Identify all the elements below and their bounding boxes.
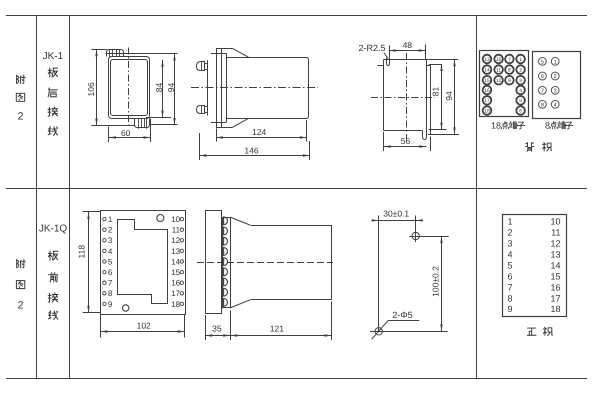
svg-text:7: 7 [541,88,544,94]
svg-text:94: 94 [166,83,176,93]
svg-text:118: 118 [77,245,87,259]
svg-text:13: 13 [484,57,490,63]
svg-text:4: 4 [508,249,513,259]
svg-text:9: 9 [108,300,113,309]
svg-text:5: 5 [519,98,522,104]
svg-text:3: 3 [508,239,513,249]
svg-text:2: 2 [554,74,557,80]
svg-text:84: 84 [154,83,164,93]
svg-text:7: 7 [508,57,511,63]
svg-text:4: 4 [554,102,557,108]
svg-text:5: 5 [508,260,513,270]
svg-text:2: 2 [508,228,513,238]
svg-text:4: 4 [519,88,522,94]
svg-text:17: 17 [484,98,490,104]
svg-text:146: 146 [244,145,258,155]
svg-text:13: 13 [550,249,560,259]
svg-text:17: 17 [171,289,180,298]
svg-text:2-Φ5: 2-Φ5 [392,310,412,320]
svg-text:11: 11 [172,226,181,235]
svg-text:48: 48 [403,40,413,50]
svg-text:JK-1Q: JK-1Q [39,223,68,234]
svg-text:6: 6 [541,74,544,80]
svg-text:2-R2.5: 2-R2.5 [358,43,385,53]
svg-text:6: 6 [508,271,513,281]
svg-text:1: 1 [519,57,522,63]
svg-text:12: 12 [550,239,560,249]
svg-text:2: 2 [108,226,113,235]
svg-text:14: 14 [550,260,560,270]
svg-text:5: 5 [108,257,113,266]
svg-text:3: 3 [519,78,522,84]
svg-text:1: 1 [554,59,557,65]
svg-text:18: 18 [484,108,490,114]
svg-text:13: 13 [171,247,180,256]
svg-text:94: 94 [444,91,454,101]
svg-text:8: 8 [541,102,544,108]
svg-text:10: 10 [496,57,502,63]
svg-text:11: 11 [551,228,560,238]
svg-text:121: 121 [270,324,284,334]
svg-text:60: 60 [121,128,131,138]
svg-text:7: 7 [108,279,113,288]
svg-text:14: 14 [484,67,490,73]
svg-text:5: 5 [541,59,544,65]
svg-text:15: 15 [550,271,560,281]
svg-text:124: 124 [252,127,266,137]
svg-text:30±0.1: 30±0.1 [383,209,409,219]
svg-text:8: 8 [508,293,513,303]
svg-text:9: 9 [508,78,511,84]
svg-text:6: 6 [108,268,113,277]
svg-text:18: 18 [491,120,501,130]
svg-text:12: 12 [496,78,502,84]
svg-text:17: 17 [550,293,560,303]
svg-text:18: 18 [171,300,180,309]
svg-text:8: 8 [508,67,511,73]
svg-text:16: 16 [550,282,560,292]
svg-text:10: 10 [550,217,560,227]
svg-text:7: 7 [508,282,513,292]
svg-text:106: 106 [86,82,96,96]
svg-text:15: 15 [484,78,490,84]
svg-text:56: 56 [401,136,411,146]
svg-text:11: 11 [496,67,501,73]
svg-text:102: 102 [137,321,151,331]
svg-text:4: 4 [108,247,113,256]
svg-text:JK-1: JK-1 [43,51,64,62]
svg-text:81: 81 [430,87,440,97]
svg-text:35: 35 [212,324,222,334]
svg-text:16: 16 [171,279,180,288]
svg-text:12: 12 [171,236,180,245]
svg-text:8: 8 [545,120,550,130]
svg-text:2: 2 [18,299,24,311]
svg-text:1: 1 [508,217,513,227]
svg-text:14: 14 [171,257,180,266]
svg-text:2: 2 [18,110,24,122]
svg-text:100±0.2: 100±0.2 [431,266,441,297]
svg-text:8: 8 [108,289,113,298]
svg-text:3: 3 [554,88,557,94]
svg-text:1: 1 [108,215,113,224]
svg-text:2: 2 [519,67,522,73]
svg-text:6: 6 [519,108,522,114]
svg-text:16: 16 [484,88,490,94]
svg-text:10: 10 [171,215,180,224]
svg-text:3: 3 [108,236,113,245]
svg-text:9: 9 [508,304,513,314]
svg-text:18: 18 [550,304,560,314]
svg-text:15: 15 [171,268,180,277]
